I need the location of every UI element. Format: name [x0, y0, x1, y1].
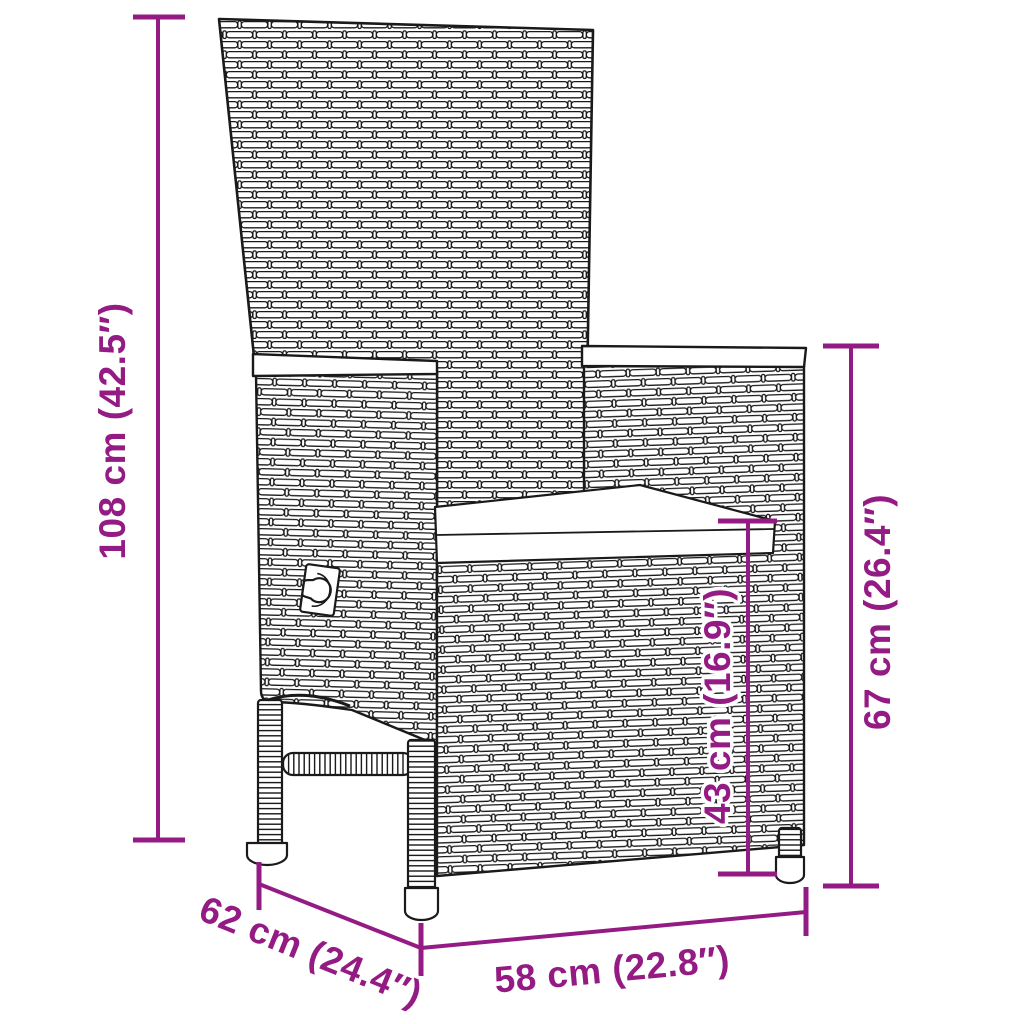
chair-front-left-foot: [405, 888, 438, 920]
chair-back-left-leg: [258, 700, 282, 845]
recline-knob-icon: [300, 564, 340, 616]
diagram-canvas: 108 cm (42.5″) 67 cm (26.4″) 43 cm (16.9…: [0, 0, 1024, 1024]
chair-back-left-foot: [247, 843, 287, 865]
chair-front-right-foot: [776, 857, 804, 883]
chair-right-armrest: [582, 346, 806, 367]
chair-front-right-leg: [779, 828, 801, 860]
total-height-label: 108 cm (42.5″): [92, 302, 133, 559]
height-dimension-line: [133, 17, 185, 840]
chair-left-side-panel: [256, 369, 437, 745]
width-label: 58 cm (22.8″): [493, 938, 732, 1001]
chair-stretcher-bar: [283, 753, 413, 775]
seat-height-label: 43 cm (16.9″): [697, 588, 738, 824]
depth-label: 62 cm (24.4″): [194, 888, 428, 1014]
armrest-height-label: 67 cm (26.4″): [857, 494, 898, 730]
chair-front-left-leg: [408, 740, 435, 890]
product-dimension-diagram: 108 cm (42.5″) 67 cm (26.4″) 43 cm (16.9…: [0, 0, 1024, 1024]
